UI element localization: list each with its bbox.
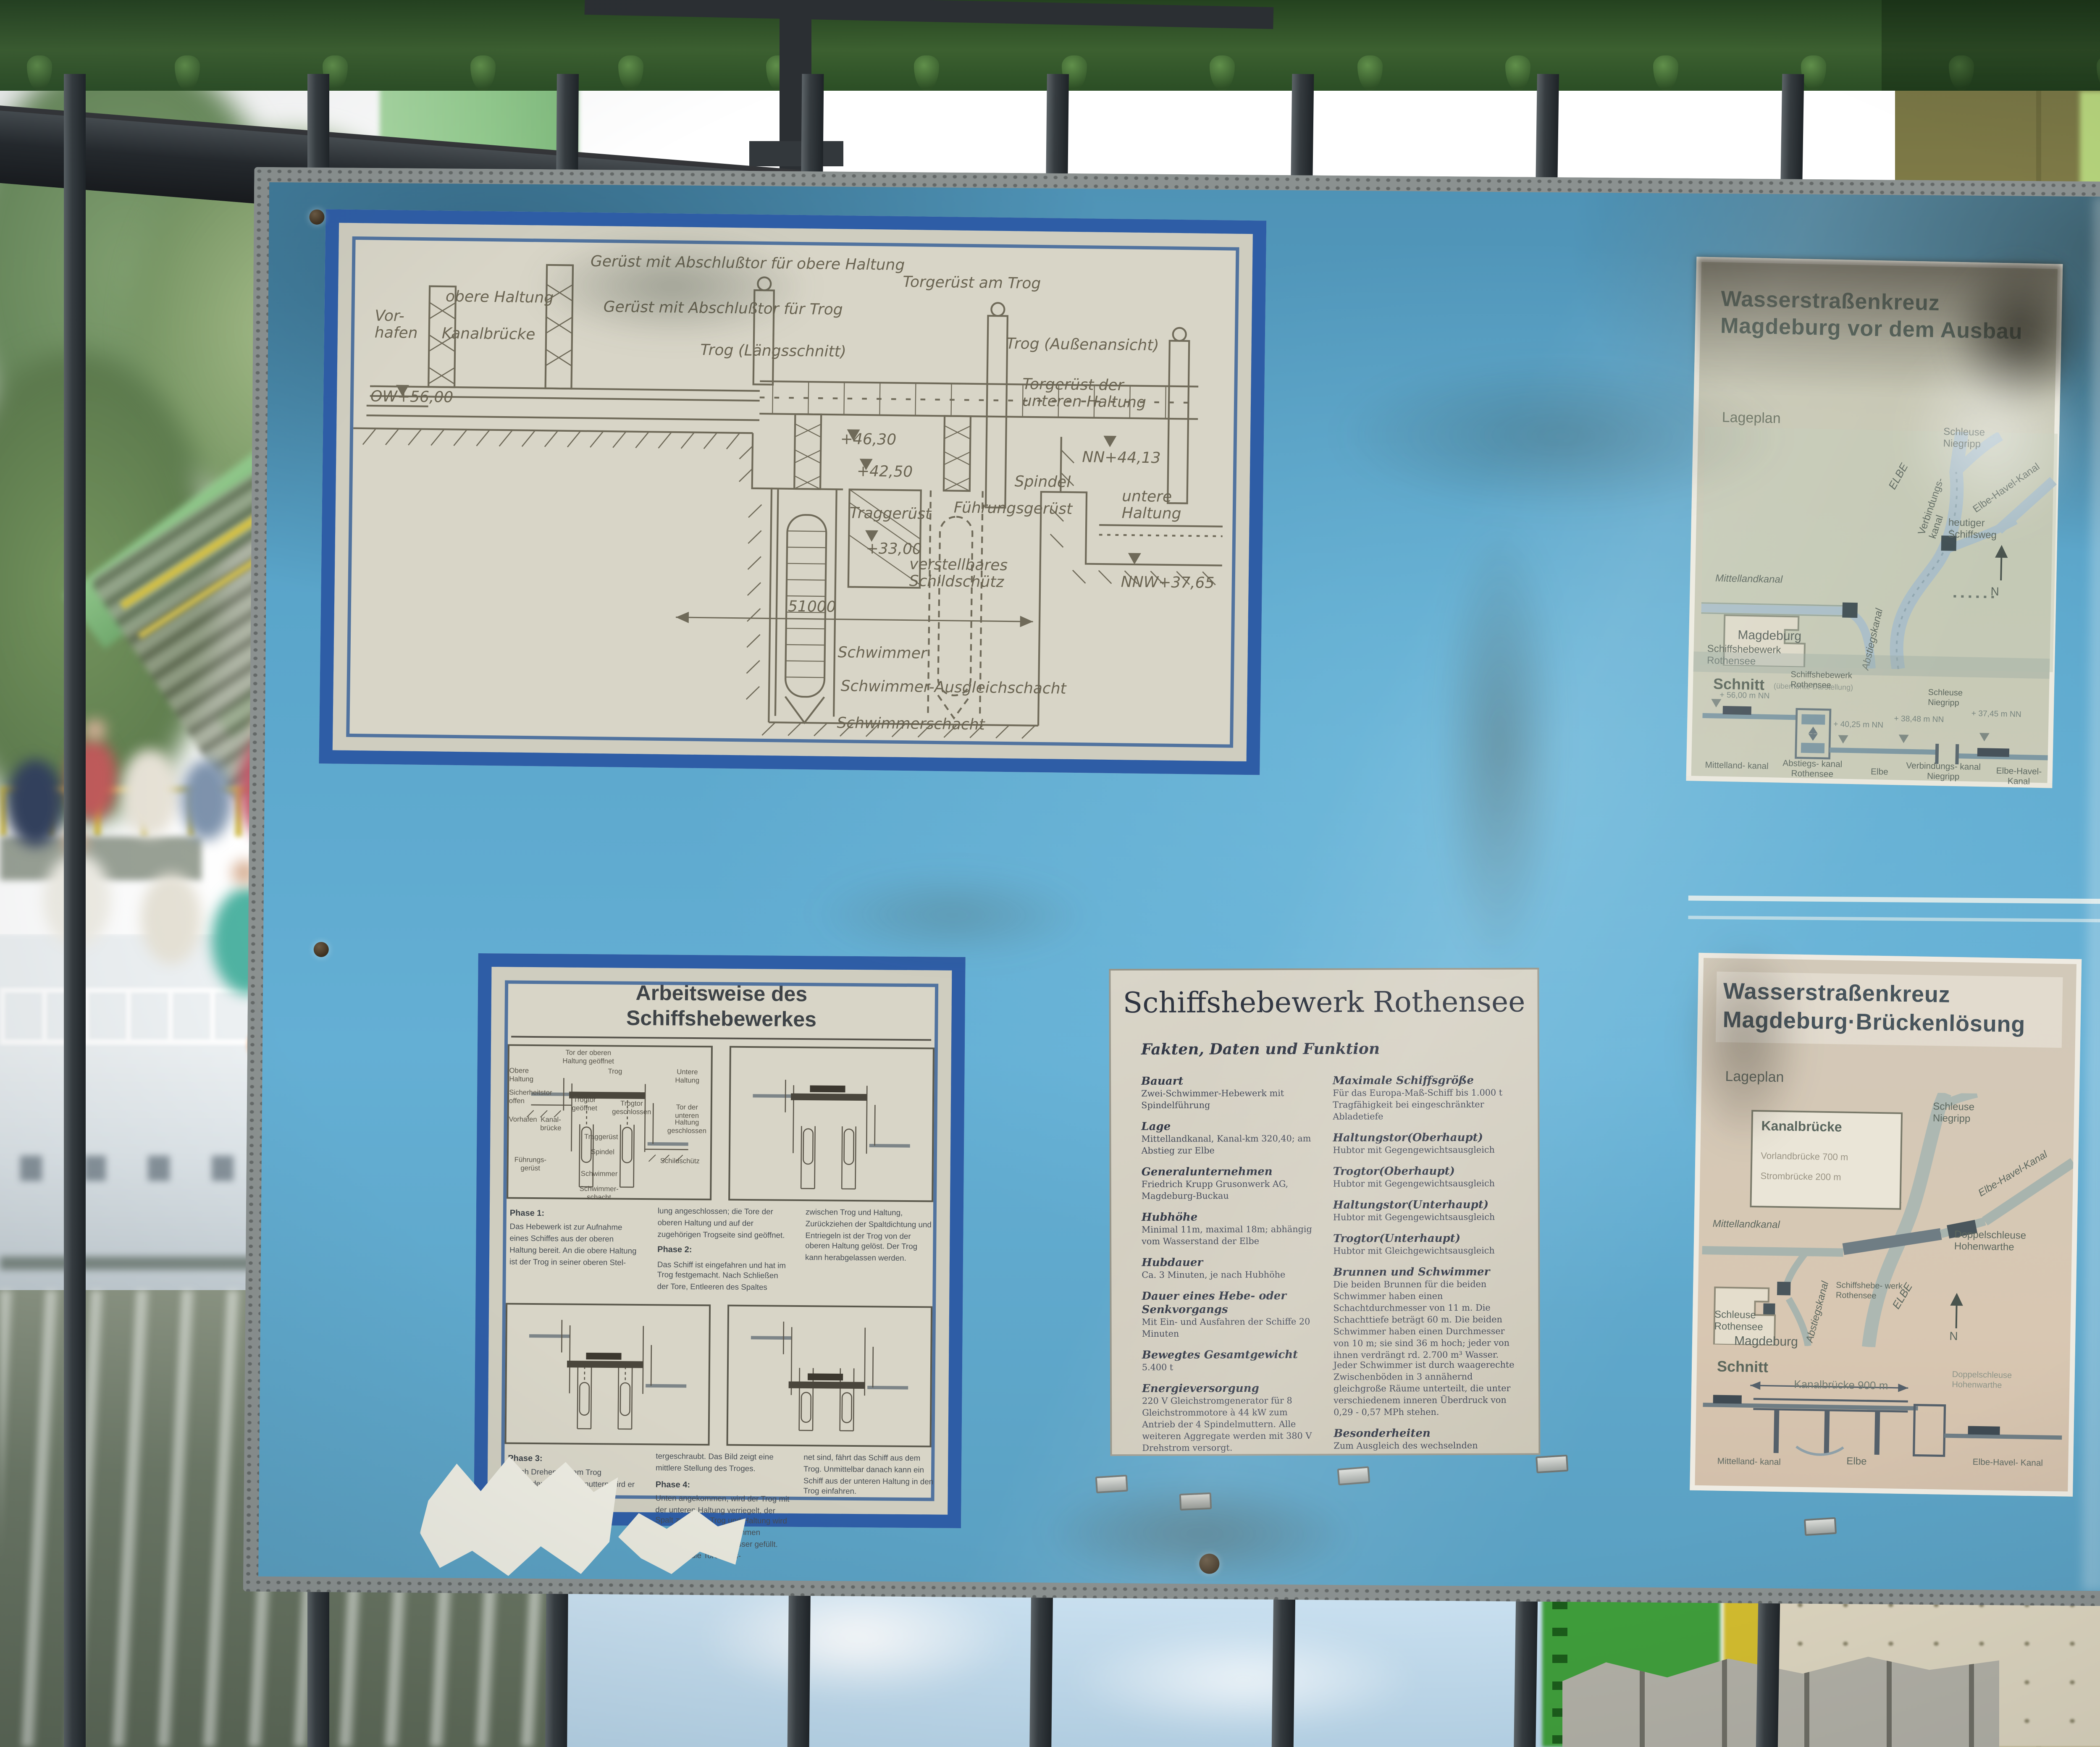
girder-rivet [470, 55, 496, 91]
girder-rivet [1653, 55, 1678, 91]
girder-rivet [1505, 55, 1530, 91]
girder-shadow-right [1882, 0, 2100, 91]
girder-rivet [1357, 55, 1383, 91]
person-blur [121, 749, 178, 837]
girder-rivet [27, 55, 52, 91]
person-blur [141, 873, 202, 964]
person-blur [7, 759, 64, 847]
girder-rivet [618, 55, 643, 91]
girder-rivet [1801, 55, 1826, 91]
cloud [1075, 1629, 1411, 1730]
person-blur [181, 759, 232, 840]
girder-rivet [175, 55, 200, 91]
girder-rivet [914, 55, 939, 91]
girder-rivet [1210, 55, 1235, 91]
photo-scene: Gerüst mit Abschlußtor für obere Haltung… [0, 0, 2100, 1747]
person-head-blur [84, 719, 106, 741]
fence-bar [64, 74, 86, 1747]
board-blue-face: Gerüst mit Abschlußtor für obere Haltung… [258, 182, 2100, 1592]
fence-post-bracket [749, 141, 843, 166]
glass-reflection [258, 182, 2100, 1592]
information-board: Gerüst mit Abschlußtor für obere Haltung… [243, 167, 2100, 1607]
